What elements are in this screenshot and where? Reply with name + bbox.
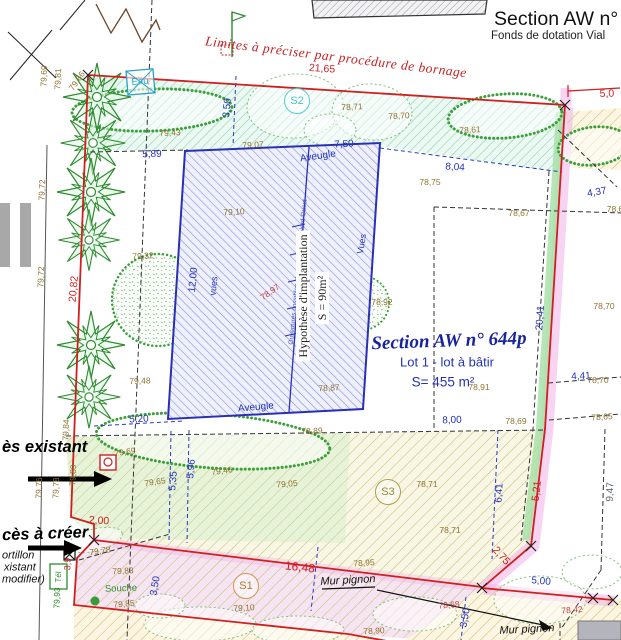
road-marking-bars	[0, 203, 31, 267]
survey-x-cross	[8, 0, 85, 80]
cadastral-plan: Limites à préciser par procédure de born…	[0, 0, 621, 640]
telecom-box-icon	[50, 564, 67, 589]
water-box-icon	[126, 69, 155, 95]
site-plan-drawing	[0, 0, 621, 640]
stump-dot	[91, 597, 100, 606]
road-edge-solid	[39, 145, 47, 640]
survey-flag-icon	[221, 12, 245, 57]
page-title: Section AW n°	[494, 8, 618, 31]
neighbor-building-top	[312, 0, 487, 18]
proposed-building	[168, 143, 380, 419]
gate-existing-icon	[100, 455, 116, 470]
neighbor-building-bottom-right	[578, 621, 621, 640]
page-subtitle: Fonds de dotation Vial	[491, 30, 605, 42]
